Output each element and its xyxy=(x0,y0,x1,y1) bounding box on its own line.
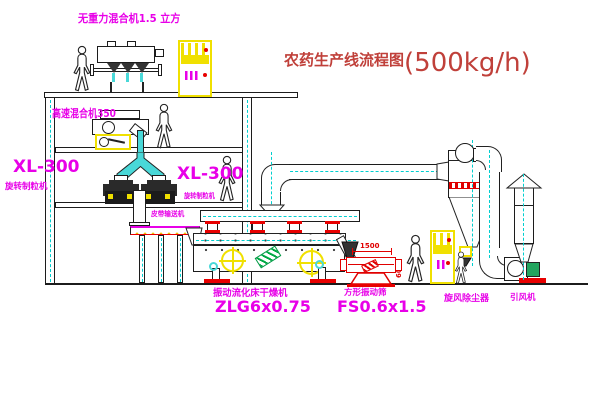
duct-centerline xyxy=(280,171,444,172)
hs-mixer-motor xyxy=(102,121,115,134)
discharge-valve xyxy=(126,73,129,82)
screen-end-cap xyxy=(340,259,347,271)
cyclone-top-sphere xyxy=(455,143,475,163)
granulator-head xyxy=(109,180,133,191)
screen-length-dim: 1500 xyxy=(360,243,379,250)
exhaust-stack xyxy=(514,186,534,244)
dryer-top-band xyxy=(193,233,346,245)
ground-line xyxy=(45,283,588,285)
granulator-discharge-chute xyxy=(133,190,146,224)
stack-funnel xyxy=(514,243,534,263)
screen-base-plate xyxy=(347,284,395,287)
indicator-lamp xyxy=(203,73,207,77)
label-granulator-name-left: 旋转制粒机 xyxy=(5,183,48,192)
header-centerline xyxy=(203,216,357,217)
granulator-head xyxy=(147,180,171,191)
granulator-accent xyxy=(127,194,132,199)
cabinet-panel-band xyxy=(433,247,452,254)
label-granulator-name-right: 旋转制粒机 xyxy=(184,193,215,200)
screen-end-cap xyxy=(395,259,402,271)
gravity-mixer-body xyxy=(97,46,155,63)
label-belt-conveyor: 皮带输送机 xyxy=(151,211,184,218)
dryer-centerline xyxy=(196,240,356,241)
rotary-granulator xyxy=(141,175,177,205)
support-base xyxy=(310,279,336,283)
gravity-mixer-flange xyxy=(158,64,162,76)
stack-centerline xyxy=(523,174,524,280)
meter-indicator xyxy=(185,71,198,80)
diagram-title: 农药生产线流程图(500kg/h) xyxy=(284,48,531,78)
conveyor-leg xyxy=(139,235,145,283)
conveyor-leg xyxy=(158,235,164,283)
label-cyclone: 旋风除尘器 xyxy=(444,295,489,304)
indicator-lamp xyxy=(447,238,451,242)
dryer-port-crosshair xyxy=(221,249,244,272)
indicator-lamp xyxy=(446,261,450,265)
support-valve xyxy=(209,262,218,271)
label-high-speed-mixer: 高速混合机350 xyxy=(52,108,116,119)
exhaust-duct-horizontal xyxy=(276,164,442,180)
person-figure xyxy=(152,103,176,150)
granulator-accent xyxy=(146,194,151,199)
person-figure xyxy=(403,234,428,284)
title-capacity: (500kg/h) xyxy=(404,48,531,78)
title-text: 农药生产线流程图 xyxy=(284,51,404,69)
fan-motor xyxy=(526,262,540,277)
indicator-lamp xyxy=(204,48,208,52)
dim-tick xyxy=(391,248,392,255)
person-figure xyxy=(452,251,470,285)
support-base xyxy=(204,279,230,283)
stack-rain-cap xyxy=(505,173,543,190)
stack-flange-line xyxy=(514,205,534,206)
discharge-cone xyxy=(135,63,149,73)
cabinet-panel-band xyxy=(181,57,209,64)
granulator-accent xyxy=(108,194,113,199)
dim-tick xyxy=(352,248,353,255)
discharge-cone xyxy=(121,63,135,73)
mixer-support-frame xyxy=(110,82,144,93)
label-granulator-model-right: XL-300 xyxy=(177,166,243,183)
granulator-accent xyxy=(165,194,170,199)
discharge-cone xyxy=(107,63,121,73)
flow-diagram-canvas: 1500 600 xyxy=(0,0,600,403)
control-cabinet xyxy=(178,40,212,97)
label-screen-model: FS0.6x1.5 xyxy=(337,299,426,315)
support-valve xyxy=(315,260,324,269)
conveyor-leg xyxy=(177,235,183,283)
screen-dim-line xyxy=(352,251,392,252)
discharge-valve xyxy=(140,73,143,82)
label-granulator-model-left: XL-300 xyxy=(13,159,79,176)
label-dryer-model: ZLG6x0.75 xyxy=(215,299,311,315)
label-gravity-mixer: 无重力混合机1.5 立方 xyxy=(78,13,180,24)
down-duct-centerline xyxy=(489,150,490,258)
gravity-mixer-outlet-pipe xyxy=(155,49,164,57)
column-centerline xyxy=(50,95,51,282)
discharge-valve xyxy=(112,73,115,82)
label-fan: 引风机 xyxy=(510,294,536,303)
person-figure xyxy=(70,44,94,94)
